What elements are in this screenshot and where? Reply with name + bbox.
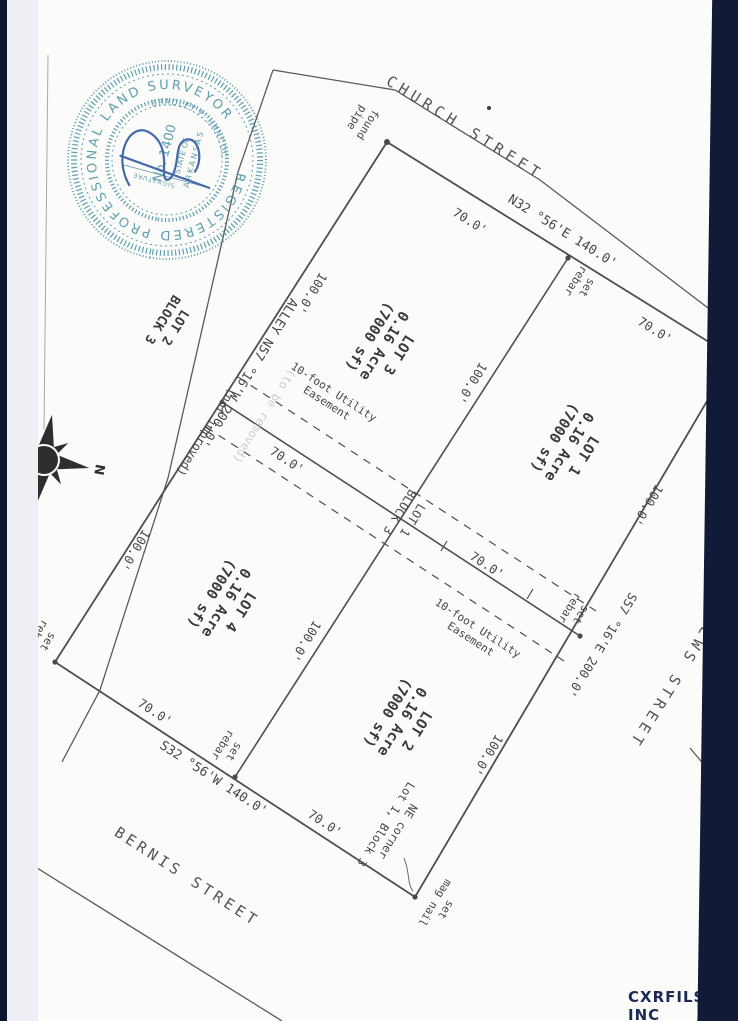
- leader-line: [404, 858, 413, 891]
- dimension-tick: [527, 589, 533, 599]
- bernis-street-row-line: [5, 848, 282, 1021]
- found-pipe-point: [384, 139, 390, 145]
- scanned-survey-plat: N REGISTERED PROFESSIONAL LAND SURVEYOR …: [0, 0, 738, 1021]
- set-rebar-point-west: [52, 659, 57, 664]
- north-label: N: [90, 463, 107, 476]
- surveyor-seal: REGISTERED PROFESSIONAL LAND SURVEYOR BR…: [52, 45, 281, 274]
- seal-number: No. 1400: [150, 123, 180, 184]
- page-crease-line: [44, 55, 48, 430]
- left-edge-navy-strip: [0, 0, 7, 1021]
- set-rebar-point-east: [577, 633, 582, 638]
- scan-speck: [487, 106, 491, 110]
- set-rebar-point-south: [232, 774, 237, 779]
- left-edge-margin-strip: [7, 0, 38, 1021]
- church-street-row-line: [273, 70, 737, 330]
- easement-dashed-line-lower: [206, 427, 564, 661]
- set-rebar-point-north: [565, 255, 570, 260]
- set-mag-nail-point: [412, 894, 417, 899]
